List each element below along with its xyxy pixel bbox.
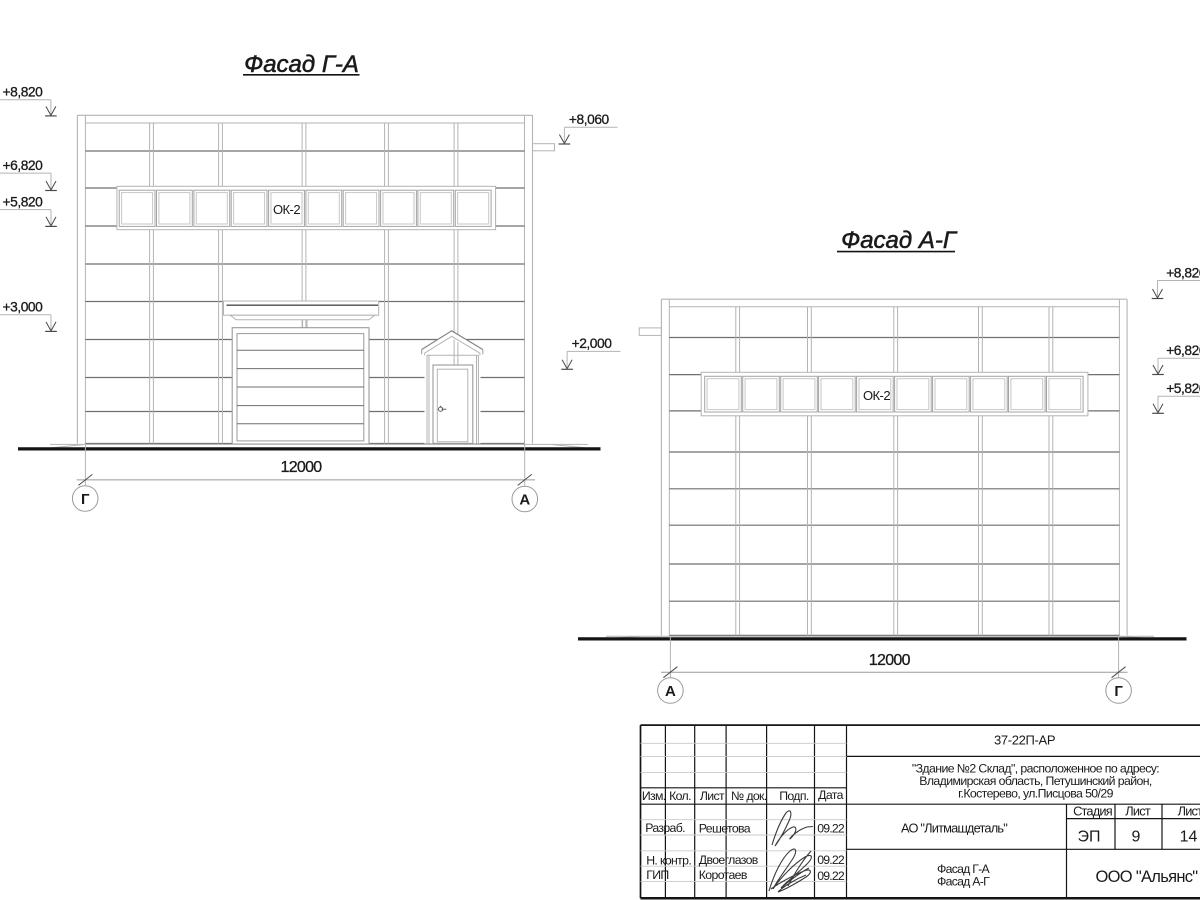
- svg-text:+8,060: +8,060: [569, 112, 610, 127]
- svg-text:37-22П-АР: 37-22П-АР: [994, 733, 1055, 748]
- svg-text:+8,820: +8,820: [3, 85, 44, 100]
- svg-text:+5,820: +5,820: [3, 194, 44, 209]
- svg-text:Г: Г: [81, 491, 90, 508]
- svg-text:Двоеглазов: Двоеглазов: [699, 853, 758, 867]
- svg-text:+6,820: +6,820: [1166, 343, 1200, 358]
- svg-text:ГИП: ГИП: [646, 868, 668, 882]
- svg-text:+2,000: +2,000: [572, 336, 613, 351]
- svg-text:Г: Г: [1114, 683, 1123, 700]
- svg-text:Н. контр.: Н. контр.: [646, 853, 691, 867]
- svg-text:Лист: Лист: [700, 789, 725, 803]
- svg-text:+3,000: +3,000: [3, 300, 44, 315]
- svg-text:Кол.: Кол.: [669, 789, 691, 803]
- svg-text:Листов: Листов: [1178, 803, 1200, 818]
- svg-text:Решетова: Решетова: [699, 821, 751, 835]
- svg-text:Подп.: Подп.: [779, 789, 809, 803]
- svg-text:Дата: Дата: [818, 788, 843, 802]
- svg-text:ЭП: ЭП: [1078, 828, 1101, 845]
- svg-text:ОК-2: ОК-2: [863, 388, 890, 403]
- svg-text:+6,820: +6,820: [3, 158, 44, 173]
- svg-text:14: 14: [1180, 828, 1198, 845]
- svg-text:ОК-2: ОК-2: [273, 202, 300, 217]
- svg-text:Фасад Г-А: Фасад Г-А: [244, 51, 359, 78]
- svg-text:Лист: Лист: [1125, 803, 1151, 818]
- svg-text:+8,820: +8,820: [1166, 265, 1200, 280]
- svg-text:А: А: [519, 492, 530, 509]
- svg-text:12000: 12000: [281, 459, 323, 476]
- svg-text:09.22: 09.22: [817, 853, 845, 867]
- svg-text:Изм.: Изм.: [642, 789, 666, 803]
- svg-text:ООО "Альянс": ООО "Альянс": [1096, 868, 1199, 886]
- svg-text:Коротаев: Коротаев: [699, 868, 747, 882]
- svg-text:9: 9: [1132, 828, 1141, 845]
- svg-text:09.22: 09.22: [817, 869, 845, 883]
- svg-text:09.22: 09.22: [817, 821, 845, 835]
- svg-text:№ док.: № док.: [731, 789, 767, 803]
- svg-text:Фасад А-Г: Фасад А-Г: [841, 227, 958, 254]
- svg-text:АО "Литмашдеталь": АО "Литмашдеталь": [901, 820, 1007, 835]
- svg-text:12000: 12000: [869, 652, 911, 669]
- svg-text:Фасад А-Г: Фасад А-Г: [937, 874, 990, 888]
- svg-text:+5,820: +5,820: [1166, 381, 1200, 396]
- svg-text:А: А: [665, 683, 676, 700]
- svg-text:Стадия: Стадия: [1073, 803, 1113, 818]
- svg-text:г.Костерево, ул.Писцова 50/29: г.Костерево, ул.Писцова 50/29: [958, 786, 1113, 800]
- svg-text:Разраб.: Разраб.: [645, 821, 685, 835]
